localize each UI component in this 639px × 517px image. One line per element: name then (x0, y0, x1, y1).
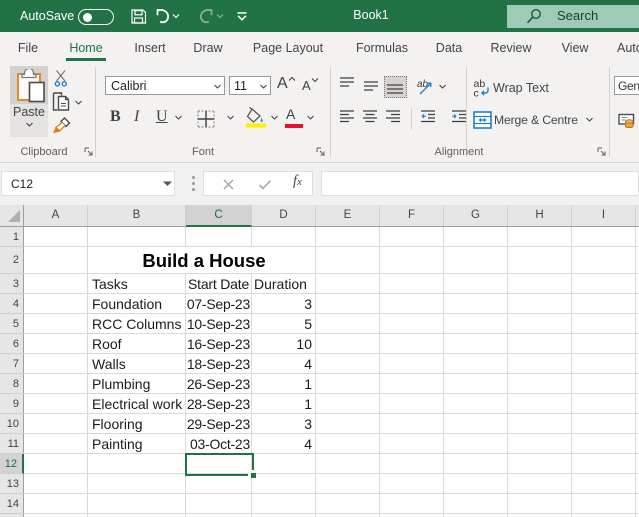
svg-text:c: c (474, 88, 479, 99)
svg-text:ab: ab (417, 79, 429, 90)
